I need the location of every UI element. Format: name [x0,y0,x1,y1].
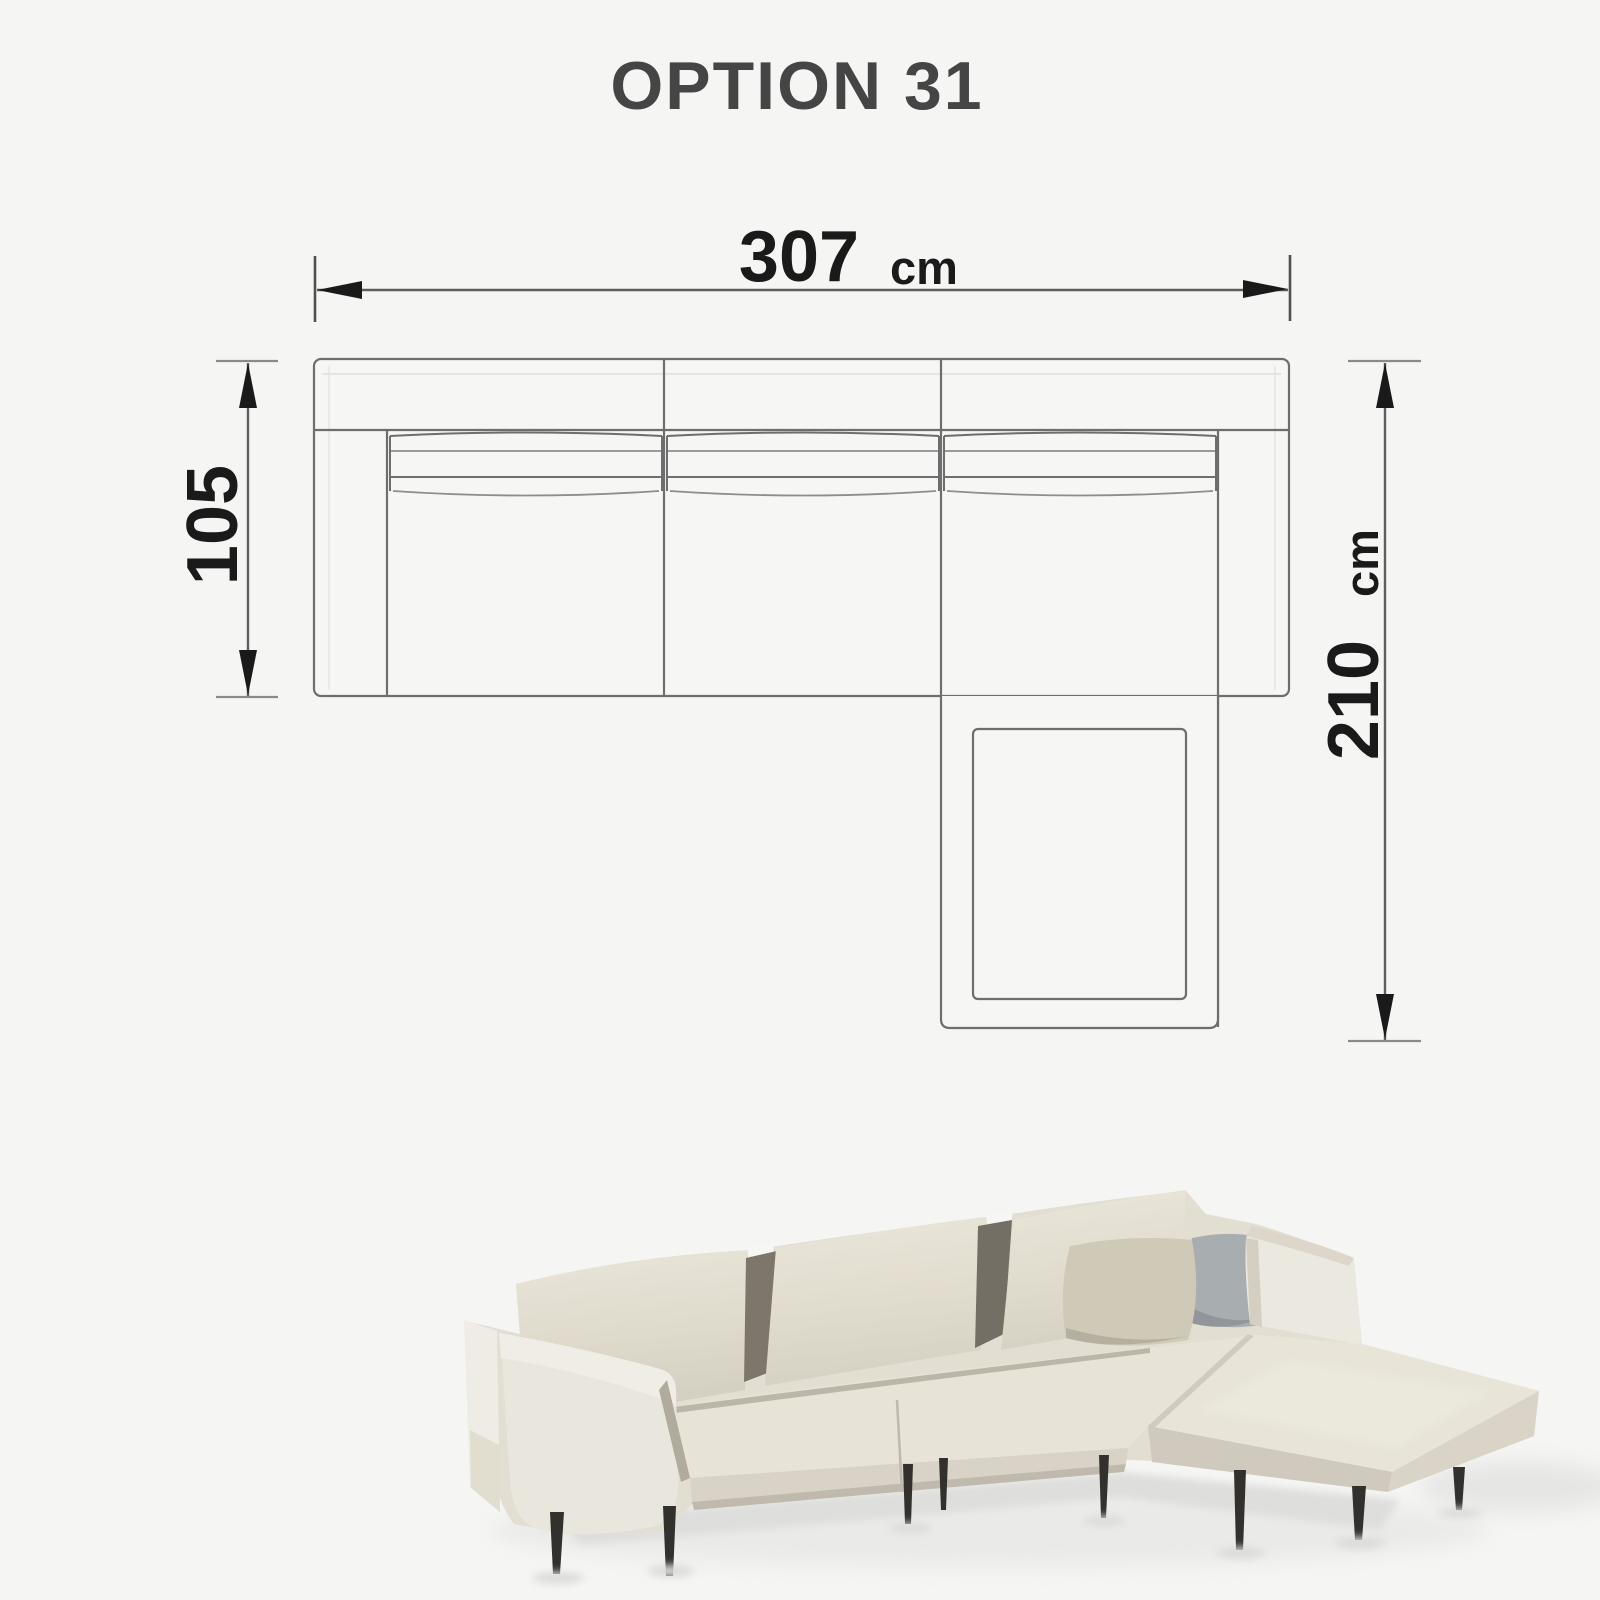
svg-text:307: 307 [739,217,859,297]
svg-text:cm: cm [1335,529,1388,597]
svg-text:cm: cm [890,241,958,294]
svg-text:210: 210 [1314,640,1394,760]
svg-text:105: 105 [173,465,253,585]
svg-text:OPTION 31: OPTION 31 [610,48,983,124]
